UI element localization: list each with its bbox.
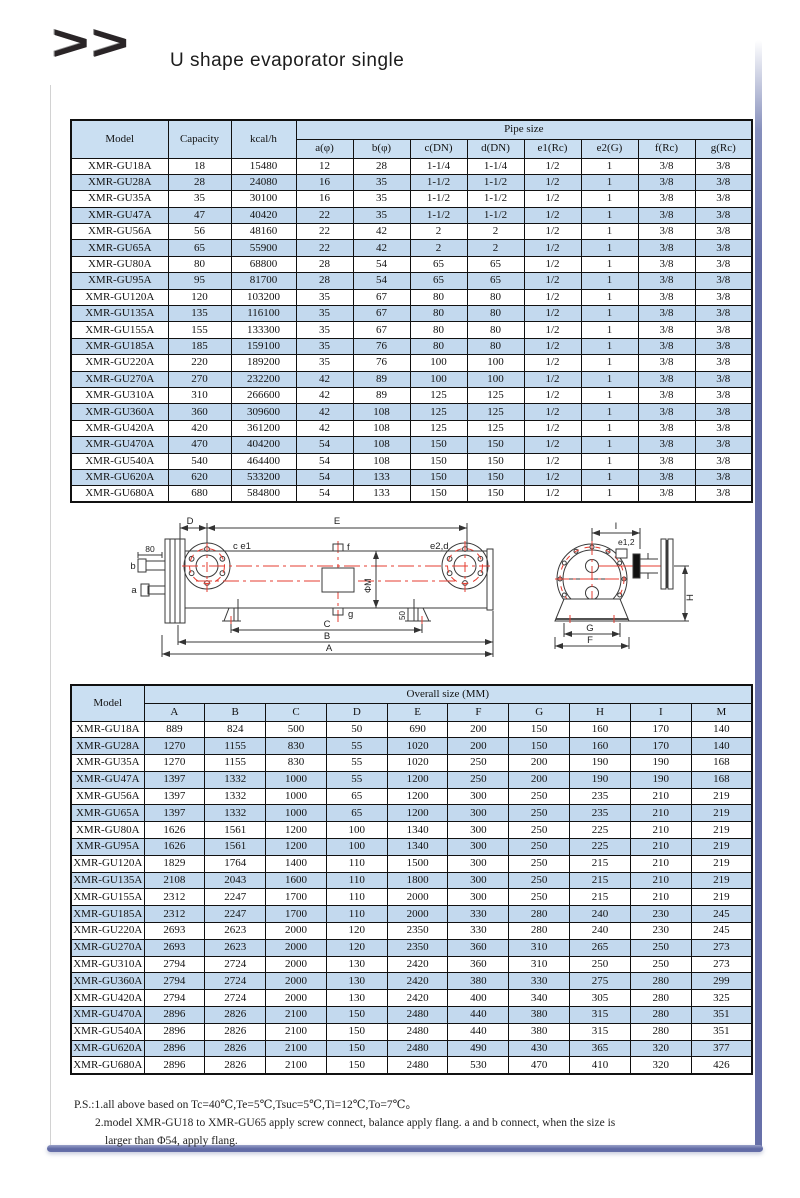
model-cell: XMR-GU540A <box>71 453 168 469</box>
value-cell: 80 <box>467 338 524 354</box>
value-cell: 160 <box>570 738 631 755</box>
table-row: XMR-GU680A680584800541331501501/213/83/8 <box>71 486 752 502</box>
value-cell: 315 <box>570 1023 631 1040</box>
port-e12-fitting <box>616 549 627 558</box>
value-cell: 1/2 <box>524 469 581 485</box>
value-cell: 1/2 <box>524 289 581 305</box>
port-b-label: b <box>130 561 135 572</box>
value-cell: 35 <box>296 355 353 371</box>
value-cell: 230 <box>630 923 691 940</box>
model-cell: XMR-GU420A <box>71 420 168 436</box>
value-cell: 110 <box>326 855 387 872</box>
value-cell: 35 <box>168 191 231 207</box>
value-cell: 3/8 <box>638 486 695 502</box>
port-ce1-label: c e1 <box>233 541 251 552</box>
table-row: XMR-GU470A470404200541081501501/213/83/8 <box>71 437 752 453</box>
value-cell: 300 <box>448 889 509 906</box>
table-row: XMR-GU155A155133300356780801/213/83/8 <box>71 322 752 338</box>
dim-phiM-label: ΦM <box>363 578 373 593</box>
value-cell: 265 <box>570 939 631 956</box>
value-cell: 1 <box>581 224 638 240</box>
value-cell: 1020 <box>387 738 448 755</box>
value-cell: 2100 <box>266 1023 327 1040</box>
value-cell: 3/8 <box>695 404 752 420</box>
value-cell: 80 <box>410 306 467 322</box>
value-cell: 250 <box>509 889 570 906</box>
value-cell: 80 <box>410 338 467 354</box>
dim-F-label: F <box>587 635 593 646</box>
model-cell: XMR-GU155A <box>71 889 144 906</box>
value-cell: 55 <box>326 771 387 788</box>
dim-D-label: D <box>187 516 194 527</box>
value-cell: 1829 <box>144 855 205 872</box>
port-e12-label: e1,2 <box>618 537 635 547</box>
value-cell: 3/8 <box>695 289 752 305</box>
value-cell: 2896 <box>144 1023 205 1040</box>
value-cell: 35 <box>296 338 353 354</box>
value-cell: 3/8 <box>638 256 695 272</box>
value-cell: 185 <box>168 338 231 354</box>
value-cell: 380 <box>509 1023 570 1040</box>
value-cell: 219 <box>691 788 752 805</box>
table-row: XMR-GU65A1397133210006512003002502352102… <box>71 805 752 822</box>
value-cell: 320 <box>630 1040 691 1057</box>
col-header-C: C <box>266 703 327 721</box>
value-cell: 2480 <box>387 1057 448 1074</box>
value-cell: 400 <box>448 990 509 1007</box>
value-cell: 1 <box>581 338 638 354</box>
value-cell: 55900 <box>231 240 296 256</box>
counter-flange-profile <box>633 539 673 589</box>
table-row: XMR-GU56A1397133210006512003002502352102… <box>71 788 752 805</box>
value-cell: 300 <box>448 872 509 889</box>
value-cell: 3/8 <box>638 273 695 289</box>
value-cell: 440 <box>448 1023 509 1040</box>
value-cell: 2312 <box>144 889 205 906</box>
value-cell: 65 <box>410 273 467 289</box>
value-cell: 2350 <box>387 923 448 940</box>
col-header-kcal: kcal/h <box>231 120 296 158</box>
value-cell: 18 <box>168 158 231 174</box>
value-cell: 2480 <box>387 1023 448 1040</box>
value-cell: 1561 <box>205 839 266 856</box>
value-cell: 3/8 <box>638 420 695 436</box>
value-cell: 110 <box>326 889 387 906</box>
value-cell: 3/8 <box>695 453 752 469</box>
value-cell: 210 <box>630 889 691 906</box>
value-cell: 1 <box>581 355 638 371</box>
right-support <box>411 599 431 624</box>
shell-right-cap <box>487 549 493 610</box>
value-cell: 2623 <box>205 923 266 940</box>
value-cell: 3/8 <box>695 322 752 338</box>
value-cell: 3/8 <box>695 486 752 502</box>
value-cell: 155 <box>168 322 231 338</box>
value-cell: 2794 <box>144 990 205 1007</box>
value-cell: 430 <box>509 1040 570 1057</box>
value-cell: 67 <box>353 306 410 322</box>
value-cell: 28 <box>296 256 353 272</box>
value-cell: 2480 <box>387 1007 448 1024</box>
value-cell: 219 <box>691 855 752 872</box>
value-cell: 360 <box>448 939 509 956</box>
value-cell: 280 <box>509 906 570 923</box>
value-cell: 125 <box>410 387 467 403</box>
value-cell: 280 <box>630 1023 691 1040</box>
value-cell: 210 <box>630 855 691 872</box>
value-cell: 2312 <box>144 906 205 923</box>
value-cell: 3/8 <box>695 355 752 371</box>
value-cell: 3/8 <box>638 289 695 305</box>
value-cell: 1800 <box>387 872 448 889</box>
value-cell: 170 <box>630 738 691 755</box>
value-cell: 1/2 <box>524 158 581 174</box>
value-cell: 3/8 <box>638 207 695 223</box>
value-cell: 130 <box>326 990 387 1007</box>
value-cell: 22 <box>296 240 353 256</box>
value-cell: 95 <box>168 273 231 289</box>
model-cell: XMR-GU185A <box>71 906 144 923</box>
value-cell: 2826 <box>205 1040 266 1057</box>
col-header-model-2: Model <box>71 685 144 721</box>
value-cell: 1270 <box>144 738 205 755</box>
value-cell: 2724 <box>205 956 266 973</box>
evaporator-drawing: 80 b a c e1 e2,d <box>100 503 760 678</box>
model-cell: XMR-GU220A <box>71 355 168 371</box>
value-cell: 2000 <box>266 939 327 956</box>
model-cell: XMR-GU620A <box>71 469 168 485</box>
value-cell: 360 <box>168 404 231 420</box>
model-cell: XMR-GU155A <box>71 322 168 338</box>
value-cell: 76 <box>353 355 410 371</box>
model-cell: XMR-GU65A <box>71 805 144 822</box>
table-row: XMR-GU310A31026660042891251251/213/83/8 <box>71 387 752 403</box>
value-cell: 110 <box>326 906 387 923</box>
table-row: XMR-GU420A420361200421081251251/213/83/8 <box>71 420 752 436</box>
value-cell: 1/2 <box>524 387 581 403</box>
value-cell: 330 <box>448 923 509 940</box>
port-f-label: f <box>347 542 350 553</box>
value-cell: 490 <box>448 1040 509 1057</box>
model-cell: XMR-GU65A <box>71 240 168 256</box>
value-cell: 300 <box>448 855 509 872</box>
model-cell: XMR-GU420A <box>71 990 144 1007</box>
value-cell: 280 <box>509 923 570 940</box>
value-cell: 189200 <box>231 355 296 371</box>
value-cell: 1 <box>581 289 638 305</box>
value-cell: 1/2 <box>524 420 581 436</box>
value-cell: 2420 <box>387 956 448 973</box>
value-cell: 80 <box>410 289 467 305</box>
value-cell: 1-1/2 <box>467 174 524 190</box>
value-cell: 89 <box>353 371 410 387</box>
table-row: XMR-GU28A1270115583055102020015016017014… <box>71 738 752 755</box>
value-cell: 325 <box>691 990 752 1007</box>
model-cell: XMR-GU120A <box>71 289 168 305</box>
value-cell: 133300 <box>231 322 296 338</box>
value-cell: 210 <box>630 839 691 856</box>
value-cell: 65 <box>467 273 524 289</box>
value-cell: 30100 <box>231 191 296 207</box>
value-cell: 1500 <box>387 855 448 872</box>
value-cell: 1626 <box>144 839 205 856</box>
value-cell: 80 <box>467 306 524 322</box>
value-cell: 65 <box>326 805 387 822</box>
value-cell: 1700 <box>266 906 327 923</box>
value-cell: 35 <box>296 289 353 305</box>
value-cell: 1200 <box>266 839 327 856</box>
value-cell: 159100 <box>231 338 296 354</box>
value-cell: 150 <box>410 453 467 469</box>
value-cell: 3/8 <box>638 224 695 240</box>
value-cell: 2724 <box>205 990 266 1007</box>
value-cell: 300 <box>448 788 509 805</box>
value-cell: 1-1/2 <box>467 191 524 207</box>
model-cell: XMR-GU360A <box>71 404 168 420</box>
value-cell: 150 <box>467 453 524 469</box>
value-cell: 22 <box>296 224 353 240</box>
value-cell: 3/8 <box>638 371 695 387</box>
value-cell: 250 <box>509 822 570 839</box>
footnotes: P.S.:1.all above based on Tc=40℃,Te=5℃,T… <box>74 1096 734 1150</box>
value-cell: 130 <box>326 973 387 990</box>
value-cell: 1/2 <box>524 322 581 338</box>
value-cell: 100 <box>467 371 524 387</box>
table-row: XMR-GU120A182917641400110150030025021521… <box>71 855 752 872</box>
value-cell: 65 <box>168 240 231 256</box>
value-cell: 215 <box>570 855 631 872</box>
value-cell: 125 <box>467 420 524 436</box>
value-cell: 420 <box>168 420 231 436</box>
value-cell: 250 <box>509 839 570 856</box>
value-cell: 2 <box>467 224 524 240</box>
value-cell: 250 <box>448 755 509 772</box>
model-cell: XMR-GU360A <box>71 973 144 990</box>
table-row: XMR-GU56A56481602242221/213/83/8 <box>71 224 752 240</box>
value-cell: 3/8 <box>638 174 695 190</box>
value-cell: 280 <box>630 990 691 1007</box>
col-header-A: A <box>144 703 205 721</box>
value-cell: 470 <box>509 1057 570 1074</box>
value-cell: 2000 <box>266 923 327 940</box>
table-row: XMR-GU18A88982450050690200150160170140 <box>71 721 752 738</box>
value-cell: 1-1/4 <box>467 158 524 174</box>
value-cell: 16 <box>296 191 353 207</box>
overall-size-table: Model Overall size (MM) A B C D E F G H … <box>70 684 753 1075</box>
value-cell: 103200 <box>231 289 296 305</box>
value-cell: 210 <box>630 788 691 805</box>
value-cell: 108 <box>353 420 410 436</box>
value-cell: 80 <box>168 256 231 272</box>
value-cell: 240 <box>570 923 631 940</box>
value-cell: 365 <box>570 1040 631 1057</box>
model-cell: XMR-GU95A <box>71 273 168 289</box>
model-cell: XMR-GU28A <box>71 174 168 190</box>
value-cell: 300 <box>448 839 509 856</box>
value-cell: 1200 <box>387 788 448 805</box>
value-cell: 35 <box>296 306 353 322</box>
value-cell: 76 <box>353 338 410 354</box>
value-cell: 120 <box>326 939 387 956</box>
value-cell: 1400 <box>266 855 327 872</box>
col-header-D: D <box>326 703 387 721</box>
value-cell: 1270 <box>144 755 205 772</box>
table-row: XMR-GU620A620533200541331501501/213/83/8 <box>71 469 752 485</box>
value-cell: 1 <box>581 191 638 207</box>
value-cell: 2826 <box>205 1023 266 1040</box>
value-cell: 40420 <box>231 207 296 223</box>
value-cell: 3/8 <box>695 174 752 190</box>
value-cell: 1/2 <box>524 306 581 322</box>
model-cell: XMR-GU80A <box>71 822 144 839</box>
value-cell: 1332 <box>205 805 266 822</box>
dim-H-label: H <box>685 594 696 601</box>
table-row: XMR-GU47A474042022351-1/21-1/21/213/83/8 <box>71 207 752 223</box>
value-cell: 47 <box>168 207 231 223</box>
value-cell: 361200 <box>231 420 296 436</box>
value-cell: 3/8 <box>638 338 695 354</box>
group-header-pipe-size: Pipe size <box>296 120 752 139</box>
value-cell: 830 <box>266 738 327 755</box>
value-cell: 108 <box>353 404 410 420</box>
value-cell: 680 <box>168 486 231 502</box>
value-cell: 1000 <box>266 788 327 805</box>
value-cell: 3/8 <box>638 469 695 485</box>
value-cell: 310 <box>168 387 231 403</box>
port-b-cap <box>138 559 146 572</box>
value-cell: 54 <box>296 469 353 485</box>
value-cell: 1-1/4 <box>410 158 467 174</box>
value-cell: 404200 <box>231 437 296 453</box>
value-cell: 1 <box>581 240 638 256</box>
table-row: XMR-GU360A279427242000130242038033027528… <box>71 973 752 990</box>
value-cell: 42 <box>296 387 353 403</box>
table-row: XMR-GU185A185159100357680801/213/83/8 <box>71 338 752 354</box>
col-header-e2: e2(G) <box>581 139 638 158</box>
col-header-d: d(DN) <box>467 139 524 158</box>
value-cell: 150 <box>509 721 570 738</box>
table-row: XMR-GU620A289628262100150248049043036532… <box>71 1040 752 1057</box>
value-cell: 1/2 <box>524 486 581 502</box>
page-title: U shape evaporator single <box>170 50 404 72</box>
value-cell: 2 <box>410 224 467 240</box>
value-cell: 1626 <box>144 822 205 839</box>
col-header-F: F <box>448 703 509 721</box>
value-cell: 150 <box>509 738 570 755</box>
value-cell: 3/8 <box>638 387 695 403</box>
model-cell: XMR-GU35A <box>71 755 144 772</box>
value-cell: 150 <box>326 1040 387 1057</box>
value-cell: 1764 <box>205 855 266 872</box>
value-cell: 3/8 <box>695 437 752 453</box>
value-cell: 232200 <box>231 371 296 387</box>
value-cell: 584800 <box>231 486 296 502</box>
value-cell: 2420 <box>387 973 448 990</box>
value-cell: 280 <box>630 973 691 990</box>
model-cell: XMR-GU56A <box>71 788 144 805</box>
model-cell: XMR-GU56A <box>71 224 168 240</box>
value-cell: 219 <box>691 839 752 856</box>
value-cell: 150 <box>326 1057 387 1074</box>
value-cell: 1/2 <box>524 338 581 354</box>
table-row: XMR-GU65A65559002242221/213/83/8 <box>71 240 752 256</box>
value-cell: 190 <box>570 755 631 772</box>
value-cell: 250 <box>509 872 570 889</box>
value-cell: 1 <box>581 387 638 403</box>
value-cell: 273 <box>691 956 752 973</box>
value-cell: 42 <box>353 240 410 256</box>
value-cell: 140 <box>691 721 752 738</box>
value-cell: 250 <box>509 805 570 822</box>
model-cell: XMR-GU18A <box>71 721 144 738</box>
value-cell: 1600 <box>266 872 327 889</box>
value-cell: 330 <box>509 973 570 990</box>
value-cell: 2247 <box>205 906 266 923</box>
value-cell: 1-1/2 <box>410 207 467 223</box>
value-cell: 81700 <box>231 273 296 289</box>
value-cell: 1/2 <box>524 191 581 207</box>
value-cell: 1/2 <box>524 224 581 240</box>
value-cell: 3/8 <box>638 437 695 453</box>
value-cell: 1/2 <box>524 174 581 190</box>
value-cell: 305 <box>570 990 631 1007</box>
col-header-M: M <box>691 703 752 721</box>
value-cell: 22 <box>296 207 353 223</box>
value-cell: 2420 <box>387 990 448 1007</box>
value-cell: 54 <box>296 486 353 502</box>
table-row: XMR-GU135A210820431600110180030025021521… <box>71 872 752 889</box>
value-cell: 530 <box>448 1057 509 1074</box>
value-cell: 3/8 <box>695 306 752 322</box>
value-cell: 2043 <box>205 872 266 889</box>
value-cell: 245 <box>691 923 752 940</box>
value-cell: 1/2 <box>524 453 581 469</box>
table-row: XMR-GU95A9581700285465651/213/83/8 <box>71 273 752 289</box>
port-e2d-label: e2,d <box>430 541 449 552</box>
value-cell: 150 <box>410 469 467 485</box>
value-cell: 2108 <box>144 872 205 889</box>
model-cell: XMR-GU120A <box>71 855 144 872</box>
value-cell: 28 <box>168 174 231 190</box>
table-row: XMR-GU270A269326232000120235036031026525… <box>71 939 752 956</box>
value-cell: 3/8 <box>695 273 752 289</box>
value-cell: 1397 <box>144 788 205 805</box>
value-cell: 1200 <box>387 805 448 822</box>
value-cell: 1200 <box>266 822 327 839</box>
value-cell: 2794 <box>144 973 205 990</box>
table-row: XMR-GU18A181548012281-1/41-1/41/213/83/8 <box>71 158 752 174</box>
value-cell: 130 <box>326 956 387 973</box>
value-cell: 1000 <box>266 805 327 822</box>
value-cell: 15480 <box>231 158 296 174</box>
value-cell: 310 <box>509 939 570 956</box>
model-cell: XMR-GU470A <box>71 437 168 453</box>
value-cell: 225 <box>570 839 631 856</box>
value-cell: 2480 <box>387 1040 448 1057</box>
value-cell: 65 <box>410 256 467 272</box>
value-cell: 1 <box>581 306 638 322</box>
port-a-pipe <box>148 586 165 594</box>
col-header-f: f(Rc) <box>638 139 695 158</box>
value-cell: 1 <box>581 371 638 387</box>
value-cell: 210 <box>630 822 691 839</box>
value-cell: 315 <box>570 1007 631 1024</box>
table-row: XMR-GU155A231222471700110200030025021521… <box>71 889 752 906</box>
model-cell: XMR-GU310A <box>71 387 168 403</box>
value-cell: 2693 <box>144 923 205 940</box>
model-cell: XMR-GU270A <box>71 371 168 387</box>
value-cell: 108 <box>353 437 410 453</box>
